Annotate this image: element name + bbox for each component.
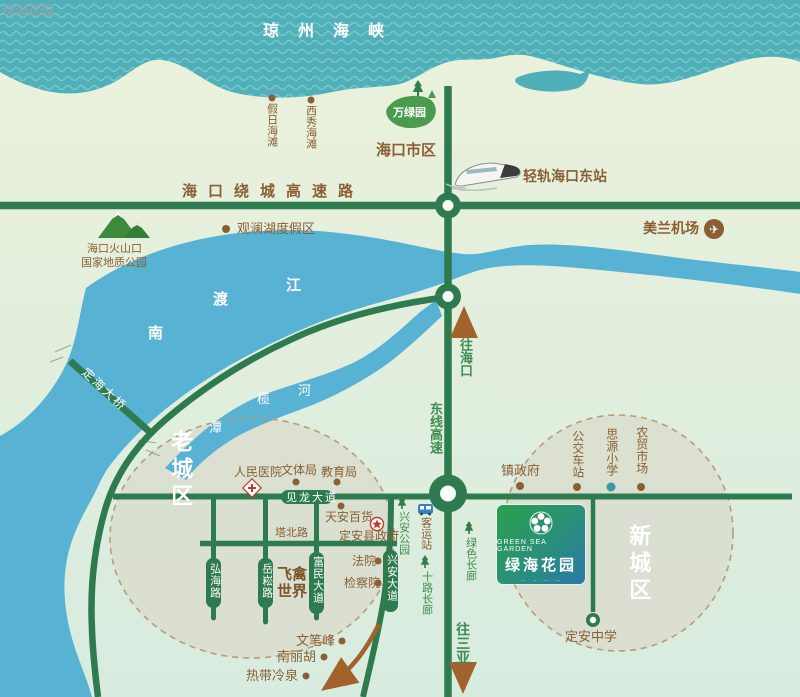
haikou-city-label: 海口市区 [376, 142, 436, 159]
nandu-river-char: 江 [286, 277, 301, 294]
jianlong-avenue-label: 见龙大道 [286, 492, 338, 505]
poi-wanlv-park: 万绿园 [393, 107, 426, 120]
poi-bus-stop: 公交车站 [570, 430, 584, 478]
ring-expressway-label: 海口绕城高速路 [182, 183, 364, 200]
light-rail-station-label: 轻轨海口东站 [523, 168, 607, 184]
nandu-river-char: 南 [148, 325, 163, 342]
watermark: 绿海花园 [2, 4, 54, 19]
nandu-river-char: 渡 [213, 291, 228, 308]
green-corridor-label: 绿色长廊 [464, 537, 477, 581]
poi-dot [308, 97, 315, 104]
poi-siyuan-school: 思源小学 [604, 428, 618, 476]
poi-tianan-store: 天安百货 [325, 511, 373, 525]
poi-dot-school [607, 483, 616, 492]
project-logo: GREEN SEA GARDEN 绿海花园 — · — · — · — [497, 505, 585, 584]
poi-guanlanhu-resort: 观澜湖度假区 [237, 222, 315, 237]
flower-emblem-icon [525, 508, 557, 538]
coach-station-label: 客运站 [419, 517, 432, 550]
logo-chinese-name: 绿海花园 [505, 554, 577, 575]
xingan-avenue-label: 兴安大道 [385, 554, 398, 602]
airport-label: 美兰机场 [643, 220, 699, 236]
poi-county-gov: 定安县政府 [339, 530, 399, 544]
plane-icon: ✈ [704, 219, 724, 239]
poi-dot [339, 638, 346, 645]
poi-dot [516, 482, 524, 490]
shilu-corridor-label: 十路长廊 [420, 571, 433, 615]
old-town-label: 老城区 [168, 430, 193, 511]
poi-dot [321, 654, 328, 661]
bus-icon [418, 504, 433, 515]
poi-education-bureau: 教育局 [321, 466, 357, 480]
map-canvas: ✈ [0, 0, 800, 697]
logo-english-name: GREEN SEA GARDEN [497, 539, 585, 553]
poi-dot [637, 483, 645, 491]
poi-dingan-school: 定安中学 [565, 630, 617, 645]
xingan-park-label: 兴安公园 [397, 511, 410, 555]
sea-label: 琼州海峡 [263, 23, 403, 41]
logo-tagline: — · — · — · — [521, 577, 561, 582]
honghai-road-label: 弘海路 [208, 563, 221, 599]
poi-dot [293, 479, 300, 486]
yuesong-road-label: 岳崧路 [260, 563, 273, 599]
tabei-road-label: 塔北路 [275, 527, 308, 540]
tanlan-river-char: 潭 [209, 421, 222, 436]
location-map: ✈ [0, 0, 800, 697]
poi-wenbi-peak: 文笔峰 [296, 634, 335, 649]
new-town-label: 新城区 [626, 524, 651, 605]
poi-xixiu-beach: 西秀海滩 [304, 105, 317, 149]
tanlan-river-char: 河 [298, 384, 311, 399]
poi-dot [338, 503, 345, 510]
east-expressway-label: 东线高速 [427, 402, 442, 454]
volcano-park-label-line1: 海口火山口 [87, 243, 142, 256]
poi-hospital: 人民医院 [234, 466, 282, 480]
to-sanya-label: 往三亚 [455, 622, 471, 664]
svg-text:✈: ✈ [709, 223, 719, 237]
poi-farmers-market: 农贸市场 [634, 426, 648, 474]
poi-procuratorate: 检察院 [344, 577, 380, 591]
fumin-avenue-label: 富民大道 [311, 556, 324, 604]
poi-dot [222, 225, 230, 233]
poi-dot [573, 483, 581, 491]
poi-court: 法院 [352, 555, 376, 569]
tanlan-river-char: 榄 [257, 392, 270, 407]
poi-sports-bureau: 文体局 [281, 464, 317, 478]
poi-town-gov: 镇政府 [501, 464, 540, 479]
poi-dot [303, 673, 310, 680]
poi-holiday-beach: 假日海滩 [265, 103, 278, 147]
poi-dot [269, 95, 276, 102]
volcano-park-label-line2: 国家地质公园 [81, 257, 147, 270]
poi-bird-world: 飞禽世界 [277, 566, 311, 601]
to-haikou-label: 往海口 [457, 338, 472, 377]
poi-hot-spring: 热带冷泉 [246, 669, 298, 684]
poi-nanlihu: 南丽胡 [277, 650, 316, 665]
